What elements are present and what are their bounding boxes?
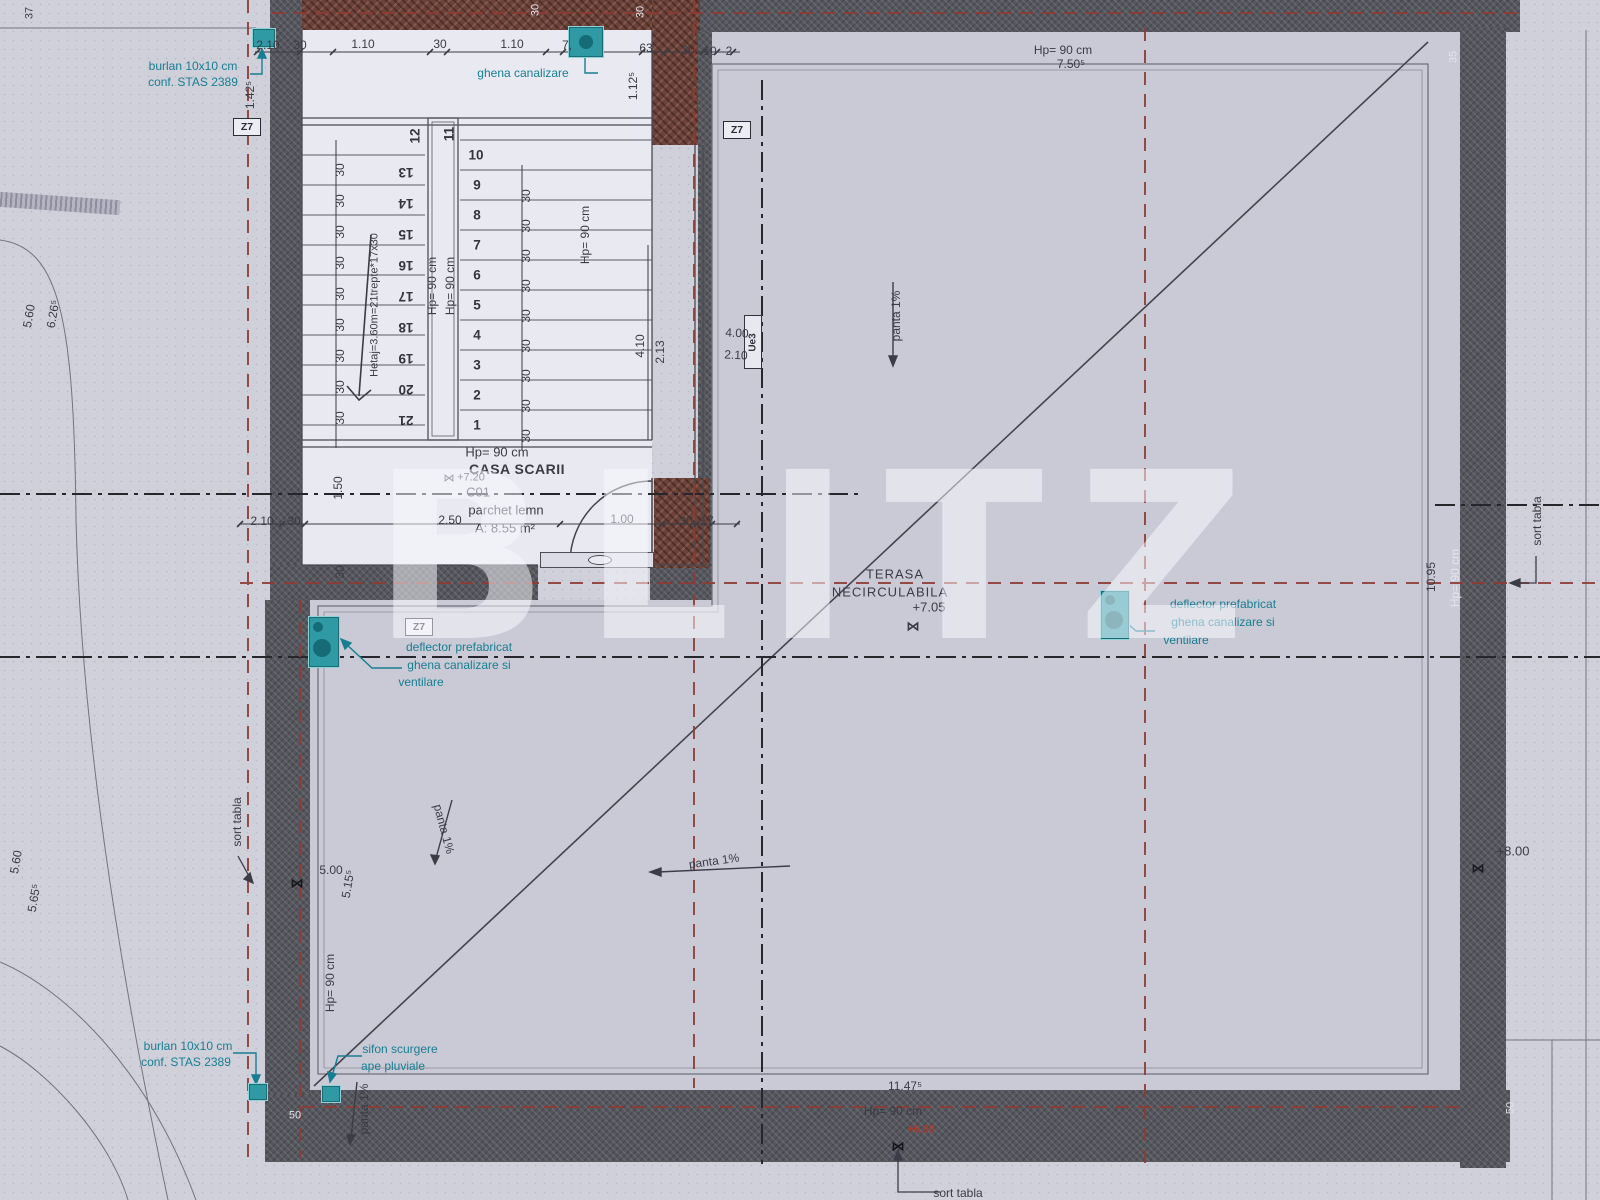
dim: 30	[433, 38, 446, 50]
z7-marker-top-left: Z7	[233, 118, 261, 136]
dim: 4.10	[634, 334, 646, 357]
dim: 1.50	[332, 476, 344, 499]
step-number: 13	[398, 165, 413, 179]
sifon-note-line1: sifon scurgere	[362, 1043, 437, 1055]
step-number: 21	[398, 413, 413, 427]
dim: 63	[639, 42, 652, 54]
step-number: 11	[442, 127, 456, 141]
parapet-height: Hp= 90 cm	[1034, 44, 1092, 56]
dim: 30	[520, 189, 532, 202]
z7-label: Z7	[731, 124, 743, 136]
deflector-pipe-icon	[1105, 611, 1123, 629]
step-number: 20	[398, 382, 413, 396]
dim: 1.42⁵	[244, 81, 256, 109]
dim: 30	[636, 6, 647, 18]
parapet-height: Hp= 90 cm	[864, 1105, 922, 1117]
dim: 2	[726, 45, 733, 57]
dim: 2.10	[256, 39, 279, 51]
burlan-note-line2: conf. STAS 2389	[148, 76, 238, 88]
sifon-marker-bottom	[321, 1085, 341, 1103]
dim: 2.13	[654, 340, 666, 363]
dim: 7.50⁵	[1057, 58, 1085, 70]
dim: 5.00	[319, 864, 342, 876]
step-number: 10	[468, 148, 483, 162]
dim: 30	[334, 256, 346, 269]
slope-label: panta 1%	[890, 291, 902, 342]
dim: 30	[520, 219, 532, 232]
dim: 30	[520, 309, 532, 322]
step-number: 5	[473, 298, 481, 312]
z7-marker-left: Z7	[405, 618, 433, 636]
dim: 30	[334, 287, 346, 300]
dim: 2.10	[724, 348, 748, 361]
z7-label: Z7	[241, 121, 253, 133]
dim: 1.10	[500, 38, 523, 50]
dim: 30	[334, 411, 346, 424]
dim: 30	[334, 194, 346, 207]
deflector-note-line2: ghena canalizare si	[407, 659, 510, 671]
dim: 30	[520, 279, 532, 292]
step-number: 6	[473, 268, 481, 282]
deflector-note-line3: ventilare	[398, 676, 443, 688]
dim: 30	[520, 369, 532, 382]
terrace-name-line2: NECIRCULABILA	[832, 586, 948, 599]
step-number: 18	[398, 320, 413, 334]
room-code: C01	[466, 486, 490, 499]
room-area: A: 8.55 m²	[475, 522, 535, 535]
dim: 1.12⁵	[627, 72, 639, 100]
ghena-pipe-icon	[579, 35, 593, 49]
dim: 1.00	[610, 513, 633, 525]
terrace-level: +7.05	[913, 601, 946, 614]
deflector-marker-left	[308, 616, 340, 668]
parapet-height: Hp= 90 cm	[324, 954, 336, 1012]
parapet-height: Hp= 90 cm	[465, 446, 528, 459]
terrace-level-right: +8.00	[1497, 845, 1530, 858]
dim: 30	[531, 4, 542, 16]
deflector-note-line1: deflector prefabricat	[406, 641, 512, 653]
terrace-name-line1: TERASA	[866, 568, 924, 581]
dim: 30	[520, 249, 532, 262]
dim: 4.00	[725, 326, 749, 339]
deflector-note-line3: ventilare	[1163, 634, 1208, 646]
dim: 30	[334, 565, 346, 578]
plan-linework	[0, 0, 1600, 1200]
step-number: 12	[408, 128, 422, 143]
level-marker-icon: ⋈	[1472, 862, 1485, 875]
parapet-height: Hp= 90 cm	[426, 257, 438, 315]
burlan-marker-bottom	[248, 1083, 268, 1101]
door-threshold-detail	[588, 555, 612, 565]
dim: 37	[25, 7, 36, 19]
dim: 30	[334, 318, 346, 331]
ghena-note: ghena canalizare	[477, 67, 568, 79]
dim: 30	[334, 380, 346, 393]
deflector-pipe-icon	[313, 639, 331, 657]
dim: 35	[1449, 51, 1460, 63]
dim: 30	[334, 225, 346, 238]
parapet-height: Hp= 90 cm	[579, 206, 591, 264]
room-finish: parchet lemn	[468, 504, 543, 517]
dim: 2.10	[250, 515, 273, 527]
dim: 50	[289, 1111, 301, 1122]
parapet-height: Hp= 90 cm	[444, 257, 456, 315]
level-marker-icon: ⋈	[907, 620, 920, 633]
step-number: 2	[473, 388, 481, 402]
dim: 50	[1506, 1102, 1517, 1114]
level-marker-icon: ⋈	[444, 474, 455, 485]
step-number: 8	[473, 208, 481, 222]
ghena-pipe-icon	[1105, 595, 1115, 605]
step-number: 14	[398, 196, 413, 210]
dim: 2.50	[438, 514, 461, 526]
dim: 30	[287, 515, 300, 527]
dim: 30	[520, 429, 532, 442]
burlan-note-line1: burlan 10x10 cm	[149, 60, 238, 72]
room-level: +7.20	[457, 473, 485, 484]
burlan-note-line1: burlan 10x10 cm	[144, 1040, 233, 1052]
dim: 5.60	[8, 849, 24, 874]
level-marker-icon: ⋈	[892, 1140, 905, 1153]
step-number: 17	[398, 289, 413, 303]
dim: 5.60	[21, 303, 37, 328]
ghena-shaft-marker-top	[568, 26, 604, 58]
dim: 30	[679, 515, 692, 527]
architectural-roof-plan: Z7 Z7 Z7 Ue3 burlan 10x10 cm conf. STAS …	[0, 0, 1600, 1200]
dim: 10.95	[1425, 562, 1437, 592]
step-number: 15	[398, 227, 413, 241]
flashing-note: sort tabla	[231, 797, 243, 846]
step-number: 9	[473, 178, 481, 192]
deflector-note-line2: ghena canalizare si	[1171, 616, 1274, 628]
burlan-note-line2: conf. STAS 2389	[141, 1056, 231, 1068]
step-number: 7	[473, 238, 481, 252]
dim: 30	[334, 349, 346, 362]
step-number: 16	[398, 258, 413, 272]
dim: 10	[703, 45, 716, 57]
door-tag-label: Ue3	[748, 333, 759, 351]
dim: 30	[293, 39, 306, 51]
z7-marker-top-right: Z7	[723, 121, 751, 139]
dim: 30	[681, 44, 694, 56]
dim: 7,	[562, 39, 572, 51]
z7-label: Z7	[413, 621, 425, 633]
step-number: 19	[398, 351, 413, 365]
flashing-note: sort tabla	[933, 1187, 982, 1199]
dim: 17	[700, 515, 713, 527]
ghena-pipe-icon	[313, 622, 323, 632]
sifon-note-line2: ape pluviale	[361, 1060, 425, 1072]
dim: 11.47⁵	[888, 1080, 922, 1092]
parapet-height: Hp= 90 cm	[1449, 549, 1461, 607]
dim: 30	[520, 399, 532, 412]
deflector-marker-right	[1100, 590, 1130, 640]
level-marker-icon: ⋈	[291, 877, 304, 890]
step-number: 4	[473, 328, 481, 342]
dim: 30	[334, 163, 346, 176]
dim: 1.10	[351, 38, 374, 50]
step-number: 3	[473, 358, 481, 372]
step-number: 1	[473, 418, 481, 432]
flashing-note: sort tabla	[1531, 496, 1543, 545]
stair-formula: Hetaj=3.60m=21trepte*17x30	[370, 233, 381, 377]
terrace-level-bottom: +6.90	[907, 1125, 935, 1136]
dim: 30	[520, 339, 532, 352]
slope-label: panta 1%	[358, 1084, 370, 1135]
deflector-note-line1: deflector prefabricat	[1170, 598, 1276, 610]
